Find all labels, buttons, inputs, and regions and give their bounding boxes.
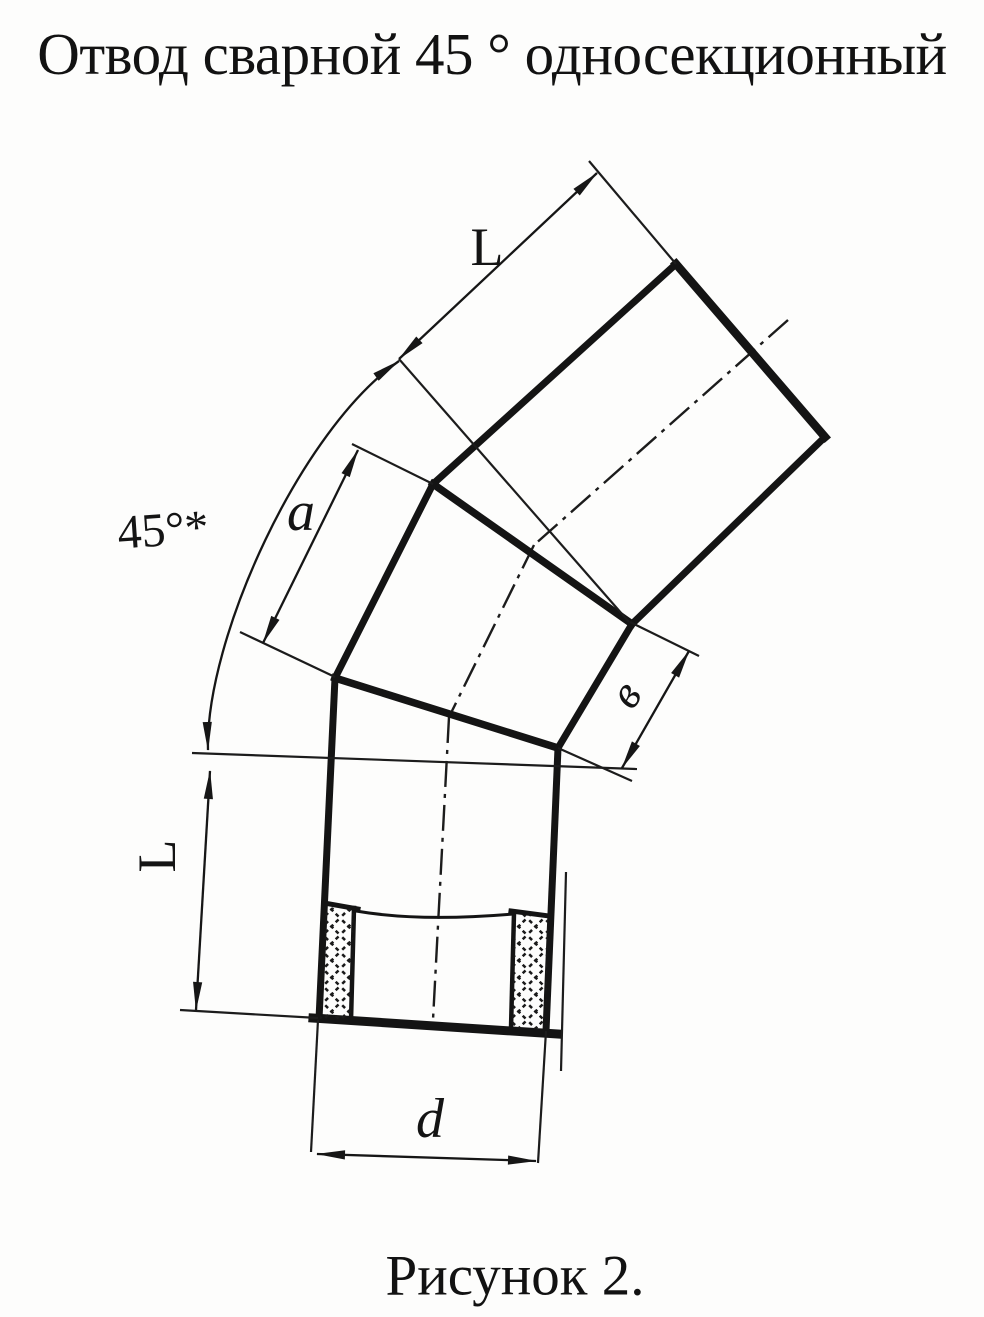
ext-L-top-upper <box>589 161 676 264</box>
upper-pipe-inner-side <box>632 437 825 624</box>
scanned-drawing-page: Отвод сварной 45 ° односекционный L a 45… <box>0 0 984 1317</box>
ext-d-left <box>311 1020 318 1152</box>
dim-line-d <box>317 1154 536 1161</box>
bottom-reference-line <box>180 1010 318 1018</box>
sleeve-top-line <box>356 911 513 917</box>
lower-pipe-right-wall <box>546 748 558 1031</box>
centerline-middle-section <box>449 545 534 717</box>
dim-line-L-left <box>196 771 210 1010</box>
dim-line-a <box>263 450 358 643</box>
weld-hatch-right <box>512 914 548 1030</box>
elbow-drawing <box>0 0 984 1317</box>
dim-label-length-top: L <box>471 216 504 278</box>
upper-pipe-end-face <box>676 264 825 437</box>
ext-d-right <box>538 1031 546 1163</box>
dim-label-section-edge: a <box>287 480 315 544</box>
middle-section-outer-edge <box>335 484 433 678</box>
dim-label-length-left: L <box>126 840 188 873</box>
ext-v-lower <box>558 748 632 781</box>
pipe-outlines <box>313 264 825 1034</box>
weld-miter-upper <box>433 484 632 624</box>
angle-label: 45°* <box>116 499 211 560</box>
dim-label-diameter: d <box>416 1087 444 1151</box>
figure-caption: Рисунок 2. <box>386 1244 645 1309</box>
weld-hatch-left <box>320 907 354 1021</box>
ext-a-upper <box>352 444 433 484</box>
ext-inner-corner-vertical <box>561 872 566 1071</box>
horizontal-reference-line <box>192 753 637 769</box>
weld-miter-lower <box>335 678 558 748</box>
ext-a-lower <box>240 632 335 677</box>
page-title: Отвод сварной 45 ° односекционный <box>0 20 984 89</box>
